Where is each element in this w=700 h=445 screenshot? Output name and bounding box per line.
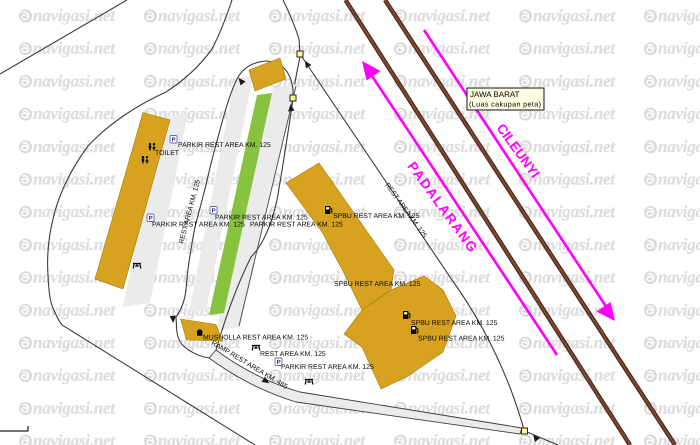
svg-text:SPBU REST AREA KM. 125: SPBU REST AREA KM. 125 xyxy=(418,336,505,343)
svg-text:PARKIR REST AREA KM. 125: PARKIR REST AREA KM. 125 xyxy=(178,142,271,149)
svg-text:SPBU REST AREA KM. 125: SPBU REST AREA KM. 125 xyxy=(411,320,498,327)
svg-text:SPBU REST AREA KM. 125: SPBU REST AREA KM. 125 xyxy=(334,281,421,288)
svg-text:TOILET: TOILET xyxy=(155,150,180,157)
svg-text:PARKIR REST AREA KM. 125: PARKIR REST AREA KM. 125 xyxy=(281,364,374,371)
svg-text:REST AREA KM. 125: REST AREA KM. 125 xyxy=(260,351,326,358)
svg-text:MUSHOLLA REST AREA KM. 125: MUSHOLLA REST AREA KM. 125 xyxy=(203,335,308,342)
svg-text:PARKIR REST AREA KM. 125: PARKIR REST AREA KM. 125 xyxy=(152,222,245,229)
svg-text:PARKIR REST AREA KM. 125: PARKIR REST AREA KM. 125 xyxy=(215,215,308,222)
svg-text:(Luas cakupan peta): (Luas cakupan peta) xyxy=(469,100,541,109)
svg-text:PARKIR REST AREA KM. 125: PARKIR REST AREA KM. 125 xyxy=(250,222,343,229)
svg-text:JAWA BARAT: JAWA BARAT xyxy=(470,90,520,99)
